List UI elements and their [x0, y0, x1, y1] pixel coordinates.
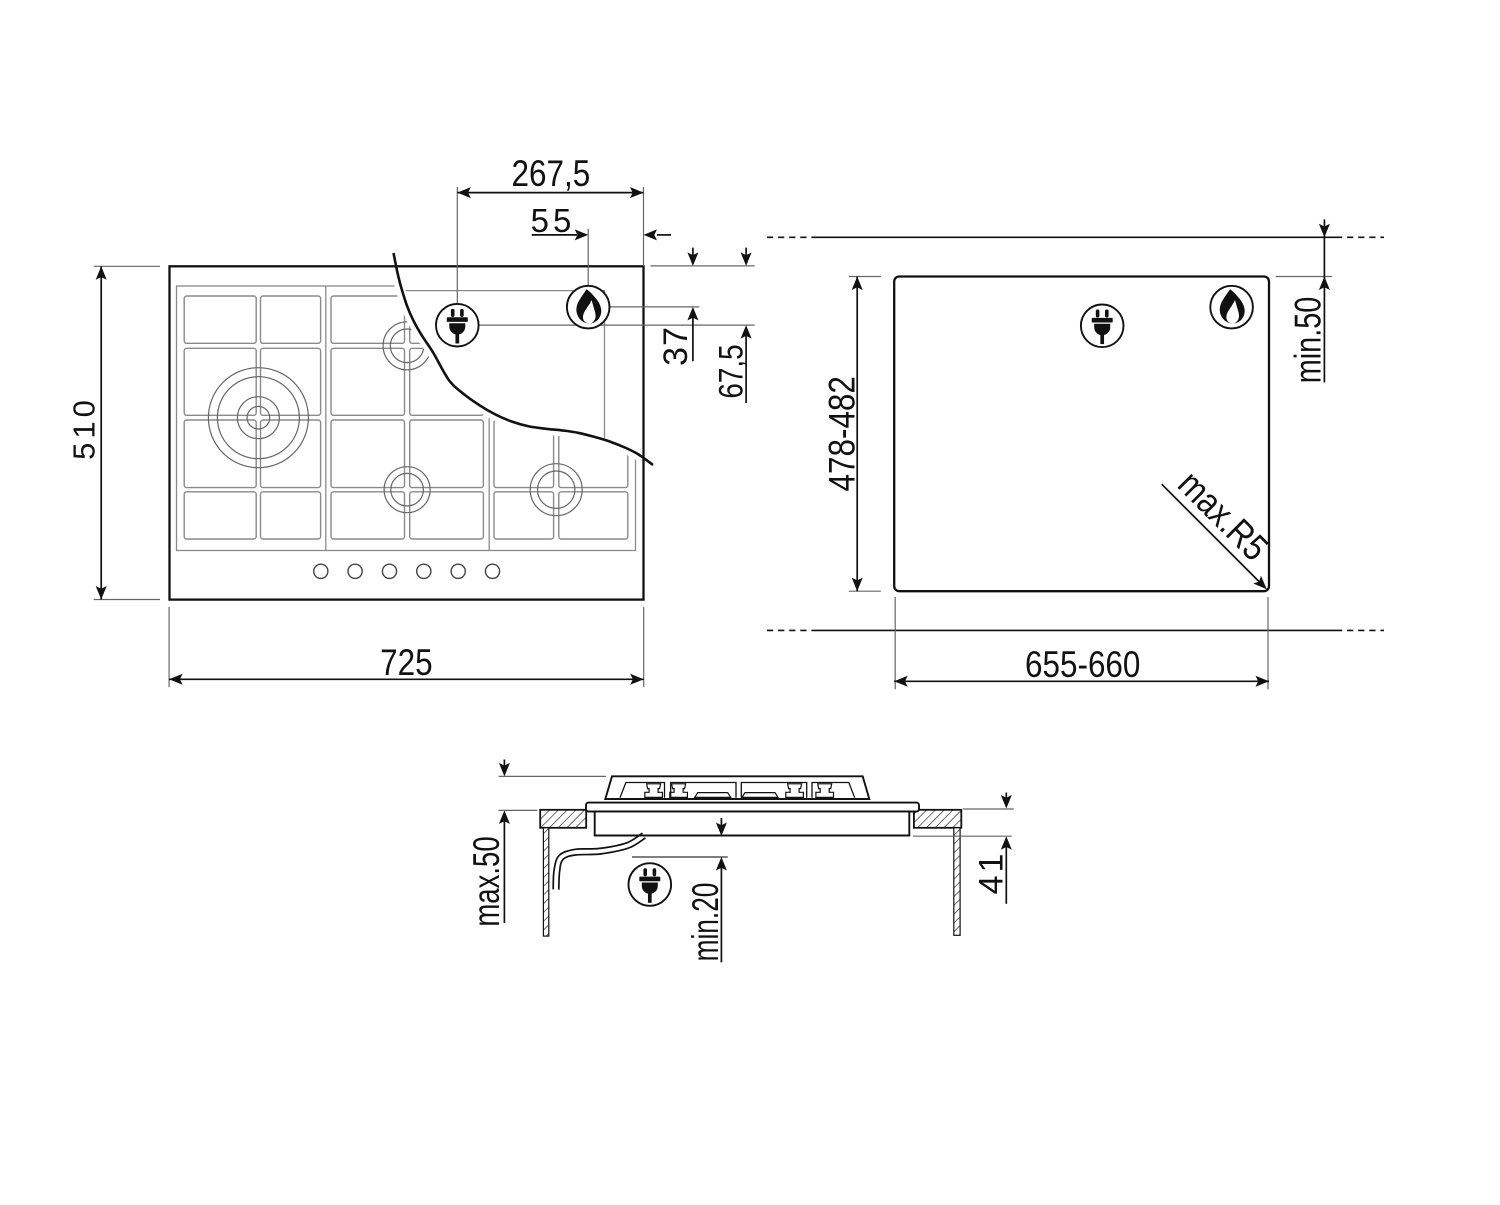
svg-text:655-660: 655-660 — [1025, 644, 1140, 685]
svg-text:510: 510 — [67, 396, 102, 460]
svg-text:37: 37 — [657, 326, 695, 366]
svg-text:min.50: min.50 — [1288, 297, 1329, 384]
svg-text:67,5: 67,5 — [712, 344, 750, 398]
svg-text:max.50: max.50 — [465, 836, 507, 926]
svg-text:55: 55 — [531, 202, 576, 239]
svg-text:41: 41 — [973, 851, 1011, 895]
svg-text:267,5: 267,5 — [512, 154, 591, 195]
svg-text:478-482: 478-482 — [822, 376, 863, 491]
svg-text:725: 725 — [380, 643, 432, 684]
svg-text:min.20: min.20 — [684, 883, 726, 962]
